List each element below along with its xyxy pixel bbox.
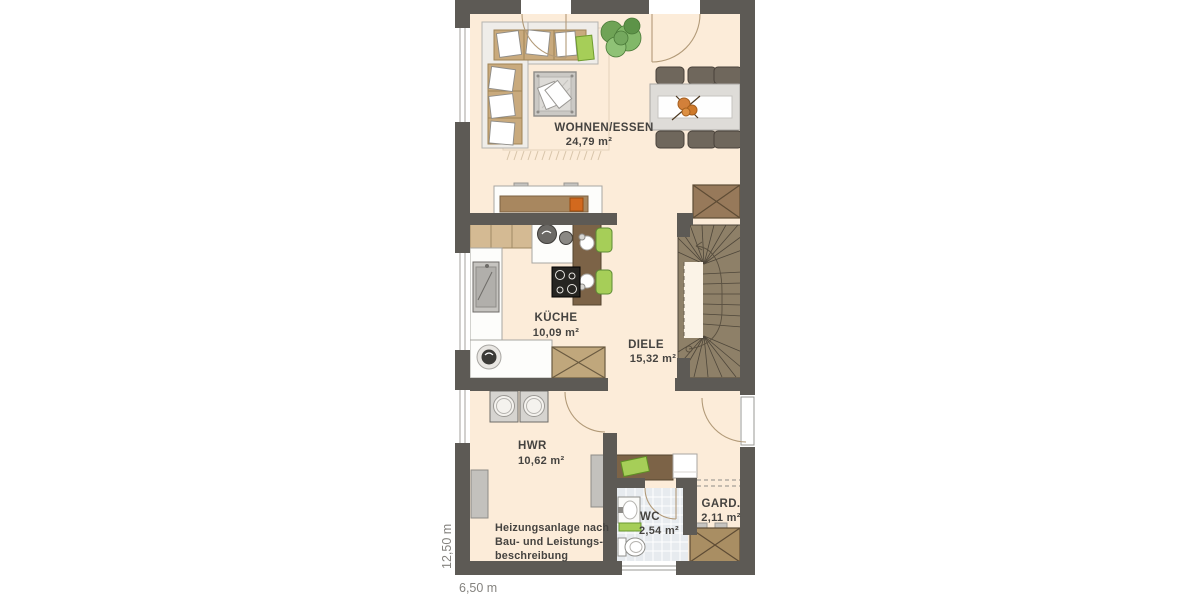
stair-landing (684, 262, 703, 338)
entrance-door-opening (740, 395, 755, 447)
dryer (520, 391, 548, 422)
kitchen-tall-cabinets (470, 222, 532, 248)
toilet (618, 538, 645, 556)
window-kitchen (455, 253, 470, 350)
svg-text:beschreibung: beschreibung (495, 550, 568, 562)
height-dimension: 12,50 m (440, 524, 454, 569)
shaft-kitchen (552, 347, 605, 378)
window-wc (622, 561, 676, 575)
hall (615, 454, 697, 480)
label-utility: HWR (518, 440, 547, 452)
area-wardrobe: 2,11 m² (701, 512, 740, 524)
wardrobe-closet (690, 523, 740, 562)
bench (615, 454, 697, 480)
heating-unit-left (471, 470, 488, 518)
entrance-door-leaf (741, 397, 754, 445)
kitchen-top-counter (532, 222, 575, 263)
area-living-dining: 24,79 m² (566, 136, 612, 148)
floor-plan-svg: WOHNEN/ESSEN 24,79 m² KÜCHE 10,09 m² DIE… (0, 0, 1200, 600)
window-living (455, 28, 470, 122)
svg-text:Bau- und Leistungs-: Bau- und Leistungs- (495, 536, 603, 548)
kitchen-bottom-counter (470, 340, 552, 378)
coffee-table (534, 72, 576, 116)
area-utility: 10,62 m² (518, 455, 564, 467)
sideboard (494, 183, 602, 214)
cooktop (552, 267, 580, 297)
staircase (678, 225, 742, 378)
terrace-door-opening-1 (521, 0, 571, 14)
area-kitchen: 10,09 m² (533, 327, 579, 339)
shaft-living (693, 185, 740, 218)
svg-text:Heizungsanlage nach: Heizungsanlage nach (495, 522, 609, 534)
wc-towel (619, 523, 641, 531)
dining-table (650, 67, 742, 148)
wc-sink (618, 497, 640, 523)
label-hall: DIELE (628, 339, 664, 351)
label-kitchen: KÜCHE (535, 311, 578, 324)
window-utility (455, 390, 470, 443)
floor-plan-canvas: WOHNEN/ESSEN 24,79 m² KÜCHE 10,09 m² DIE… (0, 0, 1200, 600)
washing-machine (490, 391, 518, 422)
bowl (560, 232, 573, 245)
terrace-door-opening-2 (649, 0, 700, 14)
width-dimension: 6,50 m (459, 581, 497, 595)
area-wc: 2,54 m² (639, 525, 679, 537)
area-hall: 15,32 m² (630, 353, 676, 365)
shoe-box (673, 454, 697, 478)
label-living-dining: WOHNEN/ESSEN (554, 122, 653, 134)
label-wardrobe: GARD. (701, 498, 740, 510)
label-wc: WC (640, 511, 660, 523)
green-sofa-pillow (576, 35, 594, 61)
wardrobe-opening (697, 478, 740, 488)
sink-bowl (538, 225, 557, 244)
